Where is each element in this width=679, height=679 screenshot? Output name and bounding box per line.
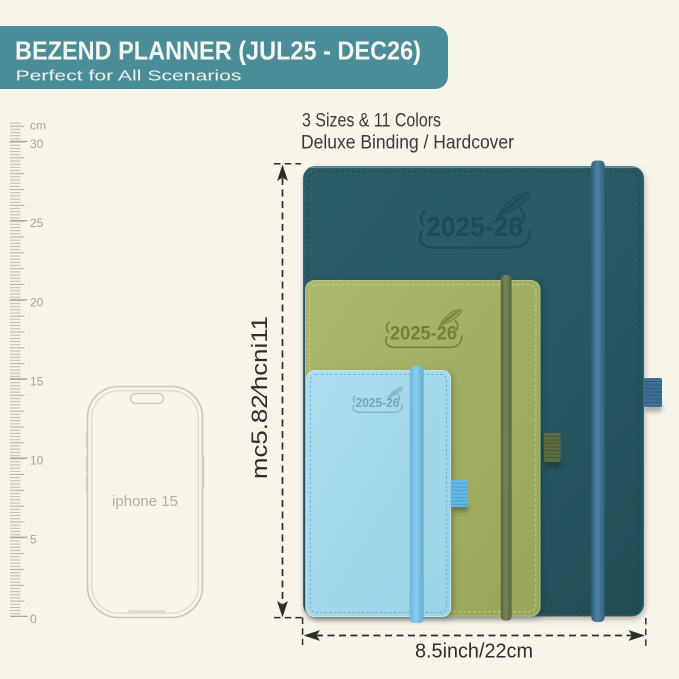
svg-text:15: 15 [30, 374, 44, 388]
svg-text:25: 25 [30, 216, 44, 230]
svg-text:8.5inch/22cm: 8.5inch/22cm [415, 641, 533, 663]
svg-text:30: 30 [30, 137, 44, 151]
svg-text:0: 0 [30, 612, 37, 626]
svg-text:5: 5 [30, 533, 37, 547]
svg-text:BEZEND PLANNER (JUL25 - DEC26): BEZEND PLANNER (JUL25 - DEC26) [15, 36, 421, 66]
svg-text:mc5.82⁄hcni11: mc5.82⁄hcni11 [247, 316, 272, 479]
svg-text:cm: cm [30, 119, 46, 133]
svg-text:3 Sizes & 11 Colors: 3 Sizes & 11 Colors [302, 111, 441, 132]
svg-text:Perfect for All Scenarios: Perfect for All Scenarios [16, 68, 242, 85]
svg-text:10: 10 [30, 454, 44, 468]
svg-text:iphone 15: iphone 15 [112, 493, 178, 510]
svg-text:Deluxe Binding / Hardcover: Deluxe Binding / Hardcover [301, 133, 515, 154]
svg-text:20: 20 [30, 295, 44, 309]
